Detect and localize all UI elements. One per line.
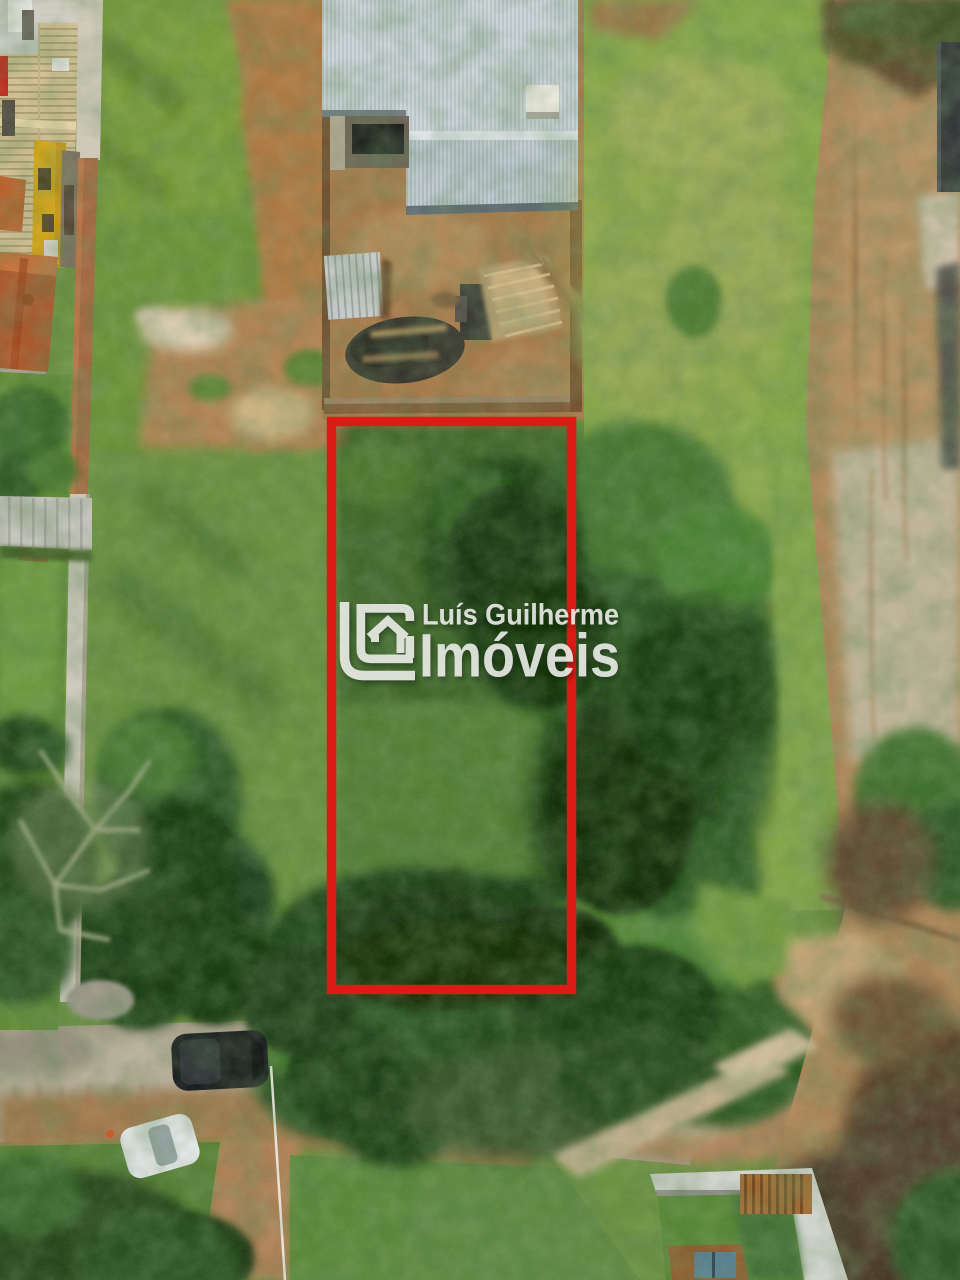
svg-text:Imóveis: Imóveis bbox=[419, 622, 620, 690]
